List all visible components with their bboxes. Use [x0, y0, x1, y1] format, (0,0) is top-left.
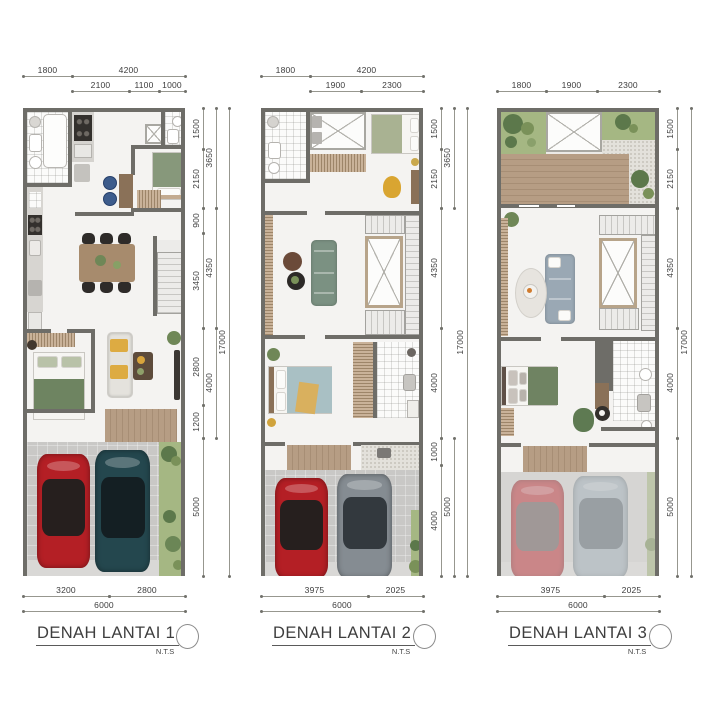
chair-icon	[82, 233, 95, 244]
plan-2-body	[261, 108, 423, 576]
window	[519, 205, 539, 207]
h-dimension: 4200	[310, 64, 423, 77]
sofa-cushion	[110, 339, 128, 352]
plan-title: DENAH LANTAI 1	[36, 624, 179, 646]
wall	[131, 145, 135, 175]
v-dimension: 4000	[664, 328, 678, 438]
skylight	[546, 112, 602, 152]
dresser	[501, 408, 514, 436]
shrub-icon	[163, 510, 176, 523]
wall	[75, 212, 134, 216]
h-dimension: 3975	[497, 584, 604, 597]
wall	[131, 208, 185, 212]
kitchen-sink-icon	[74, 144, 92, 158]
plan-3-body	[497, 108, 659, 576]
car-windshield	[285, 484, 319, 493]
v-dimension-total: 17000	[454, 108, 468, 576]
h-dimension: 1100	[129, 79, 159, 92]
bed-pillow	[410, 118, 419, 133]
washer-icon	[312, 132, 322, 144]
car-glass	[516, 502, 558, 551]
bed-blanket	[34, 379, 84, 409]
chair-icon	[100, 233, 113, 244]
stove-icon	[74, 115, 92, 141]
sofa-icon	[311, 240, 337, 306]
shrub-icon	[409, 560, 422, 573]
balcony-deck	[523, 446, 587, 472]
bed-pillow	[410, 136, 419, 151]
bed-blanket	[372, 115, 402, 153]
stool-icon	[103, 192, 117, 206]
h-dimension: 1900	[546, 79, 597, 92]
shrub-icon	[173, 560, 183, 570]
car-glass	[42, 479, 84, 536]
v-dimension: 2150	[428, 149, 442, 208]
h-dimension: 1800	[497, 79, 546, 92]
v-dimension-total: 17000	[216, 108, 230, 576]
green-chair-icon	[573, 408, 594, 432]
v-dimension: 900	[190, 208, 204, 233]
revision-circle-icon	[176, 624, 199, 649]
v-dimension: 4000	[428, 465, 442, 576]
wall	[589, 443, 659, 447]
h-dimension-total: 6000	[261, 599, 423, 612]
bed-pillow	[508, 388, 518, 404]
tree-icon	[527, 138, 536, 147]
tree-icon	[643, 188, 654, 199]
v-dimension: 1500	[190, 108, 204, 149]
v-dimension: 2800	[190, 328, 204, 405]
floor-plan-sheet: 1800 4200 2100 1100 1000 1500 2150 900 3…	[0, 0, 720, 720]
sofa-seam	[549, 298, 571, 300]
stairs	[157, 252, 185, 314]
v-dimension: 5000	[664, 438, 678, 576]
kitchen-cart	[74, 164, 90, 182]
roof-deck	[501, 154, 629, 204]
shower-icon	[29, 116, 41, 128]
v-dimension: 2150	[190, 149, 204, 208]
bench-icon	[174, 350, 180, 400]
h-dimension: 2800	[109, 584, 185, 597]
wall	[265, 179, 306, 183]
h-dimension: 1900	[310, 79, 361, 92]
side-table-icon	[267, 418, 276, 427]
lounge-sofa-icon	[107, 332, 133, 398]
h-dimension: 1800	[23, 64, 72, 77]
table-plant	[95, 255, 106, 266]
washer-icon	[28, 312, 42, 330]
tree-icon	[521, 122, 534, 135]
scale-note: N.T.S	[508, 647, 651, 656]
side-table-icon	[27, 340, 37, 350]
appliance	[28, 280, 42, 296]
v-dimension: 2150	[664, 149, 678, 208]
red-car-icon	[511, 480, 564, 576]
sink-icon	[639, 368, 652, 381]
balcony-deck	[287, 445, 351, 470]
stairs	[405, 215, 423, 335]
wall	[131, 145, 185, 149]
bed-pillow	[276, 370, 286, 389]
plan-3-title-block: DENAH LANTAI 3 N.T.S	[508, 624, 651, 656]
v-dimension: 5000	[190, 438, 204, 576]
toilet-icon	[637, 394, 651, 412]
shrub-icon	[171, 456, 181, 466]
h-dimension: 4200	[72, 64, 185, 77]
car-glass	[280, 500, 322, 550]
carport-below	[501, 472, 655, 576]
master-bed-icon	[268, 366, 332, 414]
wall	[595, 341, 609, 383]
yellow-chair-icon	[383, 176, 401, 198]
chair-icon	[100, 282, 113, 293]
plan-title: DENAH LANTAI 3	[508, 624, 651, 646]
bathtub-icon	[43, 114, 67, 168]
stairs	[599, 308, 639, 330]
bed-pillow	[37, 356, 58, 368]
shrub-icon	[165, 536, 181, 552]
red-car-icon	[37, 454, 90, 568]
h-dimension: 3200	[23, 584, 109, 597]
plant-icon	[167, 331, 181, 345]
v-dimension: 5000	[441, 438, 455, 576]
bed-throw	[295, 382, 319, 414]
toilet-icon	[167, 129, 179, 144]
v-dimension: 3450	[190, 233, 204, 328]
h-dimension: 2025	[604, 584, 659, 597]
toilet-icon	[29, 134, 42, 152]
table-plant	[291, 276, 299, 284]
h-dimension: 1000	[159, 79, 185, 92]
gray-car-icon	[337, 474, 392, 576]
stairs	[365, 215, 405, 234]
washer-icon	[312, 116, 322, 128]
stairs	[365, 310, 405, 335]
cooktop-icon	[28, 215, 42, 235]
scale-note: N.T.S	[36, 647, 179, 656]
bed-headboard	[269, 367, 274, 413]
bed-pillow	[519, 372, 527, 385]
h-dimension: 2100	[72, 79, 129, 92]
tree-icon	[631, 170, 649, 188]
car-glass	[343, 497, 387, 549]
chair-icon	[82, 282, 95, 293]
wall	[27, 409, 91, 413]
sink-icon	[268, 162, 280, 174]
wall	[91, 329, 95, 413]
lamp-icon	[599, 410, 605, 416]
console-cabinet	[119, 174, 133, 208]
bed-pillow	[61, 356, 82, 368]
stair-landing	[157, 240, 185, 252]
v-dimension: 4350	[428, 208, 442, 328]
bed-icon	[501, 366, 557, 406]
plan-title: DENAH LANTAI 2	[272, 624, 415, 646]
tray	[137, 356, 145, 364]
wall	[161, 112, 165, 148]
bed-icon	[371, 114, 423, 154]
gray-car-icon	[573, 476, 628, 576]
car-glass	[579, 498, 623, 549]
scale-note: N.T.S	[272, 647, 415, 656]
v-dimension: 3650	[441, 108, 455, 208]
v-dimension: 4350	[664, 208, 678, 328]
toilet-icon	[268, 142, 281, 159]
revision-circle-icon	[649, 624, 672, 649]
bed-pillow	[276, 392, 286, 411]
sofa-cushion	[110, 365, 128, 379]
car-windshield	[347, 480, 382, 489]
table-plant	[113, 261, 121, 269]
tree-icon	[629, 124, 638, 133]
bed-blanket	[153, 153, 184, 187]
shrub-icon	[645, 538, 658, 551]
sink-icon	[172, 116, 183, 127]
red-car-icon	[275, 478, 328, 576]
dining-table-icon	[79, 244, 135, 282]
chair-icon	[118, 282, 131, 293]
tree-icon	[505, 136, 517, 148]
sink-icon	[29, 156, 42, 169]
sofa-seam	[314, 250, 334, 252]
wardrobe	[137, 190, 161, 208]
h-dimension: 2025	[368, 584, 423, 597]
tray	[137, 368, 144, 375]
stairs	[641, 235, 659, 331]
h-dimension-total: 6000	[23, 599, 185, 612]
revision-circle-icon	[413, 624, 436, 649]
car-windshield	[583, 482, 618, 491]
h-dimension-total: 6000	[497, 599, 659, 612]
plan-1-title-block: DENAH LANTAI 1 N.T.S	[36, 624, 179, 656]
chair-icon	[118, 233, 131, 244]
stair-void	[365, 236, 403, 308]
shelf	[265, 215, 273, 335]
v-dimension: 3650	[203, 108, 217, 208]
sofa-seam	[314, 272, 334, 274]
bed-pillow	[519, 389, 527, 402]
car-windshield	[105, 457, 140, 468]
v-dimension: 4350	[203, 208, 217, 328]
h-dimension: 3975	[261, 584, 368, 597]
v-dimension: 1500	[428, 108, 442, 149]
dish-rack	[29, 192, 41, 208]
toilet-icon	[403, 374, 416, 391]
wall	[265, 442, 285, 446]
mirror-icon	[411, 158, 419, 166]
wall	[153, 236, 157, 316]
bed-headboard	[419, 115, 422, 153]
wardrobe	[310, 154, 366, 172]
wall	[601, 427, 659, 431]
porch-deck	[105, 409, 177, 442]
v-dimension-total: 17000	[678, 108, 692, 576]
sofa-pillow	[558, 310, 571, 321]
plan-1-body	[23, 108, 185, 576]
sofa-icon	[545, 254, 575, 324]
v-dimension: 1000	[428, 438, 442, 465]
wall	[609, 341, 613, 391]
ac-unit-icon	[377, 448, 391, 458]
sofa-pillow	[548, 257, 561, 268]
shower-icon	[267, 116, 279, 128]
garden-strip	[647, 472, 659, 576]
stairs	[599, 215, 659, 235]
wall	[373, 342, 377, 418]
h-dimension: 2300	[361, 79, 423, 92]
shrub-icon	[410, 540, 421, 551]
stool-icon	[103, 176, 117, 190]
stair-void	[599, 238, 637, 308]
bed-headboard	[502, 367, 506, 405]
window	[557, 205, 575, 207]
sofa-seam	[314, 292, 334, 294]
bed-pillow	[508, 370, 518, 386]
wall	[325, 335, 423, 339]
car-glass	[101, 477, 145, 538]
sofa-seam	[549, 278, 571, 280]
v-dimension: 4000	[203, 328, 217, 438]
shelf	[501, 218, 508, 336]
plant-icon	[267, 348, 280, 361]
wall	[501, 443, 521, 447]
sink-icon	[29, 240, 41, 256]
teal-car-icon	[95, 450, 150, 572]
v-dimension: 1200	[190, 405, 204, 438]
v-dimension: 4000	[428, 328, 442, 438]
bowl	[527, 288, 532, 293]
v-dimension: 1500	[664, 108, 678, 149]
desk	[411, 170, 419, 204]
plan-2-title-block: DENAH LANTAI 2 N.T.S	[272, 624, 415, 656]
h-dimension: 2300	[597, 79, 659, 92]
car-windshield	[521, 486, 555, 495]
h-dimension: 1800	[261, 64, 310, 77]
tree-icon	[503, 114, 523, 134]
vanity-icon	[407, 400, 419, 418]
wardrobe	[353, 342, 373, 418]
coffee-table-icon	[283, 252, 302, 271]
wall	[501, 337, 541, 341]
wall	[265, 335, 305, 339]
car-windshield	[47, 461, 81, 471]
bed-blanket	[528, 367, 558, 405]
shower-icon	[407, 348, 416, 357]
